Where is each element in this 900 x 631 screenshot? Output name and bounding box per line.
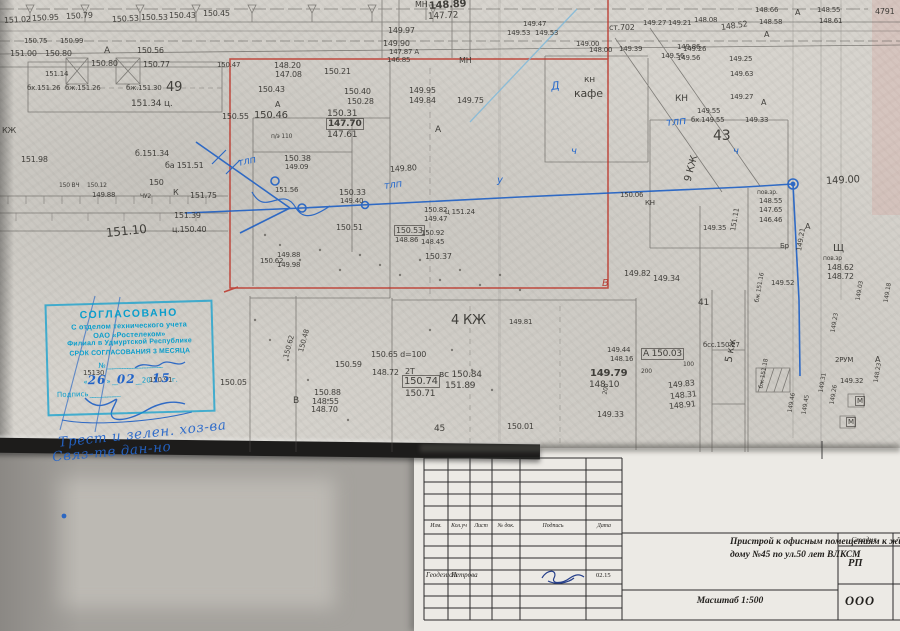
map-label: 147.61: [327, 130, 357, 140]
map-label: 200: [641, 368, 652, 375]
map-label: 150.38: [284, 154, 311, 163]
map-label: 150.62: [282, 334, 296, 359]
map-label: 149.90: [383, 39, 410, 48]
map-label: 148.55: [759, 197, 782, 205]
map-label: бх.151.26: [27, 84, 60, 92]
map-label: 150.59: [335, 360, 362, 369]
map-label: 150.46: [254, 110, 288, 121]
handwritten-mark: у: [497, 175, 503, 186]
map-label: 151.00: [10, 49, 37, 58]
titleblock-column-header: Кол.уч: [451, 523, 467, 529]
handwritten-mark: тлп: [665, 114, 686, 129]
map-label: 149.39: [619, 45, 642, 53]
map-label: 149.27: [730, 93, 753, 101]
map-label: 150.12: [87, 182, 107, 189]
map-label: КН: [675, 94, 688, 104]
map-label: ба 151.51: [165, 161, 204, 170]
map-label: 149.00: [826, 174, 860, 187]
map-label: 149.47: [424, 215, 447, 223]
map-label: 149.47: [523, 20, 546, 28]
map-label: 149.98: [277, 261, 300, 269]
map-label: 150.82: [424, 206, 447, 214]
stamp-text: СОГЛАСОВАНОС отделом технического учетаО…: [47, 306, 212, 360]
sheet-col-label: Л: [896, 535, 900, 544]
map-label: 150.01: [507, 422, 534, 431]
map-label: 150.77: [143, 60, 170, 69]
map-label: 151.14: [45, 70, 68, 78]
map-label: 150.06: [620, 191, 643, 199]
map-label: В: [602, 278, 609, 289]
map-label: вс 150.84: [439, 370, 482, 380]
map-label: А: [764, 30, 769, 39]
map-label: 149.09: [285, 163, 308, 171]
map-label: ЧУ2: [140, 193, 151, 200]
map-label: 150.48: [297, 328, 311, 353]
map-label: 149.03: [855, 280, 865, 301]
map-label: 148.52: [720, 19, 748, 32]
map-label: 150.45: [203, 9, 230, 18]
map-label: пов.зр: [823, 255, 842, 262]
map-label: К: [173, 188, 178, 197]
map-label: 150.53: [112, 14, 139, 24]
map-label: ст.702: [609, 23, 635, 32]
map-label: 150: [149, 178, 164, 187]
stamp-date-line: «26» __02__ 20 15 г.: [48, 369, 212, 388]
map-label: КЖ: [2, 126, 16, 135]
stamp-day: 26: [87, 372, 106, 387]
approval-stamp: СОГЛАСОВАНОС отделом технического учетаО…: [44, 300, 215, 417]
map-label: 149.18: [883, 282, 893, 303]
handwritten-mark: ч: [571, 146, 577, 157]
date-cell: 02.15: [596, 572, 611, 579]
map-label: 150.99: [60, 37, 83, 45]
map-label: бж.151.26: [65, 84, 101, 92]
handwritten-mark: тлп: [237, 154, 257, 169]
map-label: А: [875, 355, 880, 364]
map-label: 151.39: [174, 211, 201, 220]
map-label: Бр: [780, 242, 789, 250]
map-label: 148.66: [755, 6, 778, 14]
map-label: 148.70: [311, 405, 338, 414]
map-label: кафе: [574, 87, 603, 100]
map-label: кн: [584, 75, 595, 85]
map-label: 147.72: [428, 10, 459, 22]
map-label: 150.75: [24, 37, 47, 45]
map-label: бх.149.55: [691, 116, 724, 124]
map-label: 43: [713, 128, 730, 144]
map-label: 149.95: [409, 86, 436, 95]
map-label: А 150.03: [642, 349, 683, 359]
map-label: 147.70: [327, 119, 363, 129]
stamp-sign-line: Подпись ____________: [49, 386, 213, 399]
map-label: 150.79: [66, 11, 93, 21]
titleblock-column-header: № док.: [498, 523, 515, 529]
map-label: 148.45: [421, 238, 444, 246]
map-label: 150.80: [45, 49, 72, 58]
map-label: 147.08: [275, 70, 302, 79]
map-label: ц 151.24: [445, 208, 475, 216]
map-label: б.151.34: [135, 149, 169, 158]
map-label: 9 КЖ: [683, 154, 701, 183]
map-label: 148.72: [827, 272, 854, 281]
map-label: 149.25: [729, 55, 752, 63]
map-label: 149.46: [787, 392, 797, 413]
map-label: 150.43: [169, 11, 196, 20]
map-label: 151.75: [190, 191, 217, 200]
map-label: А: [104, 46, 110, 56]
map-label: 148.58: [759, 18, 782, 26]
stage-label: Стадия: [851, 535, 876, 544]
map-label: 150.56: [137, 46, 164, 55]
map-label: 150.95: [32, 13, 59, 23]
map-label: 149.84: [409, 96, 436, 105]
map-label: В: [293, 396, 299, 406]
map-label: 149.40: [340, 197, 363, 205]
map-label: 151.98: [21, 155, 48, 164]
map-label: 148.55: [817, 6, 840, 14]
map-label: 148.23: [873, 362, 883, 383]
map-label: 45: [434, 424, 445, 434]
map-label: 150.28: [347, 97, 374, 106]
map-label: 4791: [875, 7, 895, 16]
map-label: 147.65: [759, 206, 782, 214]
map-label: 150.71: [405, 389, 435, 399]
map-label: пов.зр.: [757, 189, 778, 196]
titleblock-column-header: Дата: [597, 523, 611, 529]
titleblock-column-header: Подпись: [543, 523, 564, 529]
map-label: бж.151.30: [126, 84, 162, 92]
map-label: 149.23: [830, 312, 840, 333]
map-label: 150 ВЧ: [59, 182, 79, 189]
map-label: 149.26: [829, 384, 839, 405]
map-label: 151.89: [445, 381, 475, 391]
map-label: 148.20: [274, 61, 301, 70]
map-label: 150.55: [222, 112, 249, 121]
map-label: 148.16: [610, 355, 633, 363]
map-label: 149.97: [388, 26, 415, 35]
map-label: 150.05: [220, 378, 247, 387]
scanned-survey-plan: 151.02150.95150.79150.53150.53150.43150.…: [0, 0, 900, 631]
map-label: 149.33: [597, 410, 624, 419]
titleblock-column-header: Изм.: [430, 523, 441, 529]
map-label: 150.33: [339, 188, 366, 197]
map-label: 149.35: [703, 224, 726, 232]
map-label: 41: [698, 298, 709, 308]
map-label: 146.85: [387, 56, 410, 64]
map-label: 149.27: [643, 19, 666, 27]
map-label: МН: [415, 0, 428, 9]
map-label: 149.33: [745, 116, 768, 124]
map-label: 151.56: [275, 186, 298, 194]
map-label: 149.32: [840, 377, 863, 385]
org-name: ООО: [845, 594, 875, 609]
map-label: 150.40: [344, 87, 371, 96]
map-label: 4 КЖ: [451, 313, 486, 328]
map-label: М: [847, 418, 855, 426]
map-label: 151.34 ц.: [131, 99, 173, 109]
map-label: бж 151.16: [754, 272, 766, 303]
stamp-month: 02: [117, 371, 136, 386]
map-label: 149.45: [801, 394, 811, 415]
map-label: А: [275, 100, 280, 109]
map-label: ц.150.40: [172, 225, 206, 234]
name-cell: Петрова: [451, 571, 478, 579]
map-label: 151.02: [4, 15, 31, 25]
map-label: 150.43: [258, 85, 285, 94]
map-label: 149.31: [818, 372, 828, 393]
map-label: 151.10: [105, 222, 147, 240]
map-label: 149.81: [509, 318, 532, 326]
map-label: 148.72: [372, 368, 399, 377]
map-label: 147.87 А: [389, 48, 419, 56]
map-label: 150.88: [314, 388, 341, 397]
map-label: 149.53: [535, 29, 558, 37]
map-label: 149.21: [795, 227, 807, 251]
map-label: 149.34: [653, 274, 680, 283]
map-label: КН: [645, 199, 655, 207]
map-label: 150.31: [327, 109, 357, 119]
map-label: А: [761, 98, 766, 107]
map-label: Щ: [833, 243, 844, 254]
map-label: 148.00: [589, 46, 612, 54]
map-label: М: [856, 397, 864, 405]
map-label: п/э 110: [271, 133, 292, 140]
map-label: 49: [166, 80, 182, 95]
map-label: А: [435, 125, 441, 135]
map-label: 149.83: [668, 378, 696, 390]
map-label: А: [805, 222, 810, 231]
map-label: 150.92: [421, 229, 444, 237]
map-label: 2Т: [405, 367, 415, 376]
map-label: 149.21: [668, 19, 691, 27]
map-label: 149.26: [683, 45, 706, 53]
stage-value: РП: [848, 558, 863, 569]
map-label: 2РУМ: [835, 356, 853, 364]
stamp-year: 15: [152, 370, 171, 385]
map-label: МН: [459, 56, 472, 65]
map-label: 146.46: [759, 216, 782, 224]
map-label: 149.55: [697, 107, 720, 115]
map-label: 148.86: [395, 236, 418, 244]
map-label: 149.56: [677, 54, 700, 62]
map-label: 100: [683, 361, 694, 368]
map-label: 150.65 d=100: [371, 350, 426, 359]
map-label: 148.61: [819, 17, 842, 25]
map-label: А: [795, 8, 800, 17]
map-label: 150.47: [217, 61, 240, 69]
map-label: 149.52: [771, 279, 794, 287]
map-label: 149.88: [92, 191, 115, 199]
map-label: 150.53: [141, 13, 168, 22]
map-label: бж 151.18: [758, 358, 770, 389]
map-label: 148.91: [669, 399, 697, 411]
map-label: 149.75: [457, 96, 484, 105]
map-label: 200: [602, 383, 611, 395]
map-label: 149.44: [607, 346, 630, 354]
map-label: 149.88: [277, 251, 300, 259]
map-label: 150.21: [324, 67, 351, 76]
map-label: 150.80: [91, 59, 118, 68]
handwritten-mark: тлп: [383, 179, 403, 192]
scale-label: Масштаб 1:500: [697, 596, 764, 606]
map-label: 149.80: [390, 163, 417, 174]
handwritten-mark: ч: [733, 146, 739, 157]
map-label: 150.37: [425, 252, 452, 261]
map-label: 150.74: [403, 376, 439, 387]
map-label: 151.11: [729, 207, 741, 231]
map-label: 150.53: [395, 226, 424, 235]
map-label: 148.08: [694, 16, 717, 24]
map-label: 148.62: [827, 263, 854, 272]
map-label: 149.79: [590, 368, 627, 379]
handwritten-mark: Д: [550, 79, 560, 93]
map-label: 150.51: [336, 223, 363, 232]
map-label: 149.63: [730, 70, 753, 78]
map-label: 149.53: [507, 29, 530, 37]
titleblock-column-header: Лист: [474, 523, 488, 529]
map-label: 149.82: [624, 269, 651, 278]
